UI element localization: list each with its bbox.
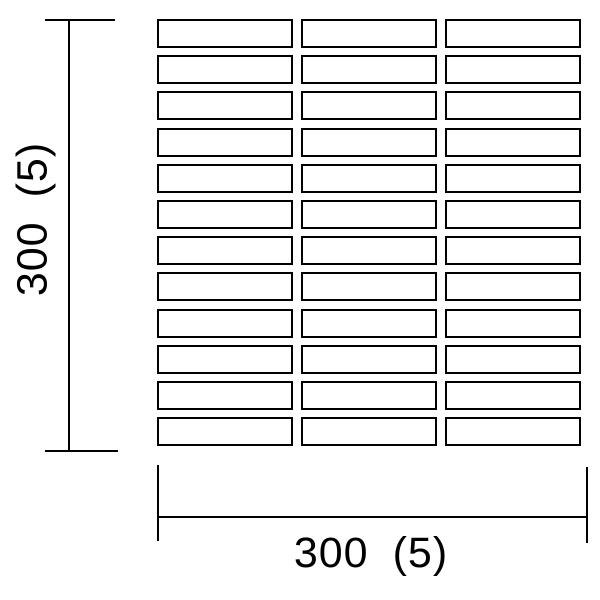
tile-cell — [445, 55, 581, 84]
tile-cell — [157, 381, 293, 410]
tile-cell — [301, 19, 437, 48]
tile-cell — [445, 200, 581, 229]
tile-cell — [445, 236, 581, 265]
tile-cell — [157, 200, 293, 229]
tile-cell — [445, 19, 581, 48]
horizontal-dimension-value: 300 — [294, 529, 369, 577]
tile-cell — [157, 55, 293, 84]
tile-cell — [157, 272, 293, 301]
tile-cell — [301, 272, 437, 301]
vertical-dimension-value: 300 — [9, 221, 57, 296]
tile-cell — [445, 128, 581, 157]
horizontal-dimension-right-tick — [586, 467, 588, 543]
tile-cell — [301, 128, 437, 157]
horizontal-dimension-label: 300(5) — [294, 532, 448, 575]
tile-cell — [157, 91, 293, 120]
tile-cell — [445, 309, 581, 338]
vertical-dimension-bottom-tick — [45, 450, 118, 452]
vertical-dimension-top-tick — [45, 19, 115, 21]
tile-cell — [157, 309, 293, 338]
tile-cell — [301, 55, 437, 84]
tile-grid — [157, 19, 581, 446]
tile-cell — [301, 164, 437, 193]
tile-cell — [445, 91, 581, 120]
tile-cell — [301, 417, 437, 446]
vertical-dimension-joint: (5) — [9, 142, 57, 198]
tile-cell — [445, 345, 581, 374]
vertical-dimension-label: 300(5) — [12, 142, 55, 296]
horizontal-dimension-line — [157, 516, 588, 518]
tile-cell — [301, 91, 437, 120]
tile-cell — [157, 19, 293, 48]
horizontal-dimension-left-tick — [157, 465, 159, 541]
horizontal-dimension-joint: (5) — [393, 529, 449, 577]
tile-cell — [445, 164, 581, 193]
tile-cell — [445, 381, 581, 410]
tile-cell — [301, 236, 437, 265]
tile-cell — [157, 164, 293, 193]
tile-cell — [301, 309, 437, 338]
tile-cell — [301, 200, 437, 229]
tile-cell — [157, 236, 293, 265]
tile-cell — [157, 417, 293, 446]
tile-cell — [301, 345, 437, 374]
drawing-canvas: 300(5) 300(5) — [0, 0, 600, 600]
tile-cell — [157, 128, 293, 157]
tile-cell — [301, 381, 437, 410]
tile-cell — [445, 272, 581, 301]
vertical-dimension-line — [68, 19, 70, 452]
tile-cell — [445, 417, 581, 446]
tile-cell — [157, 345, 293, 374]
